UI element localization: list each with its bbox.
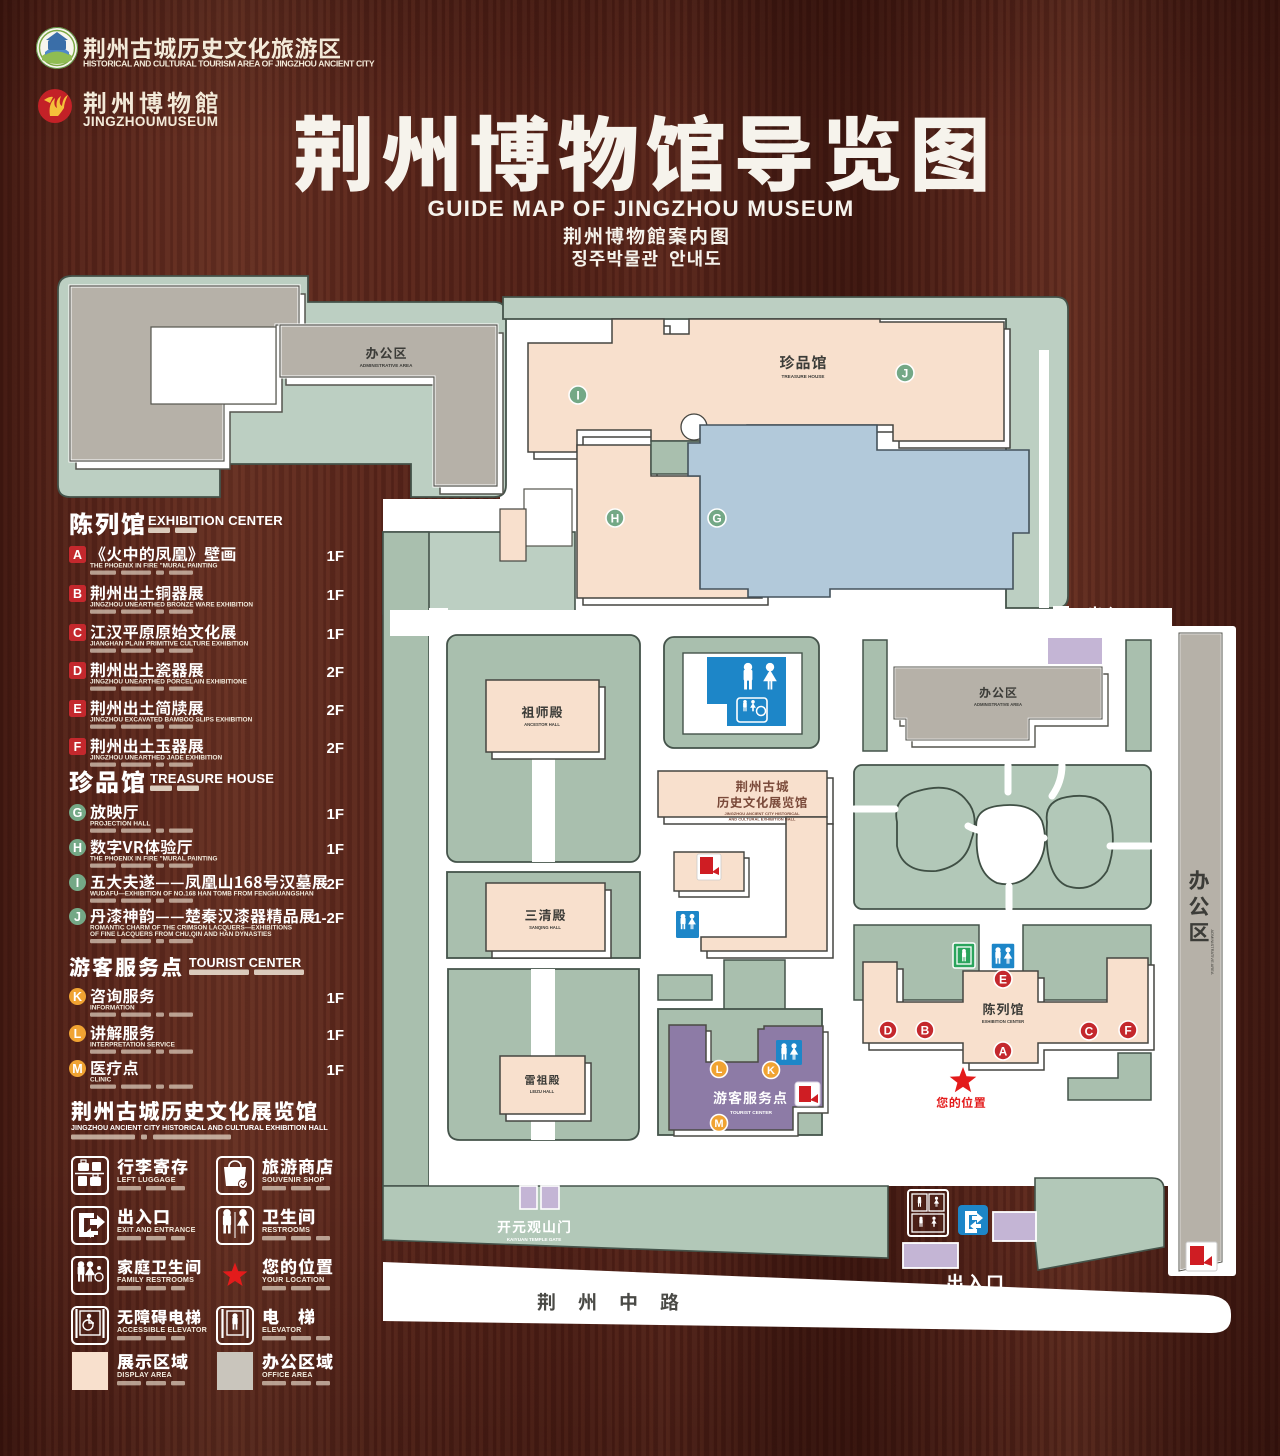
svg-text:G: G — [73, 806, 83, 820]
svg-text:ADMINISTRATIVE AREA: ADMINISTRATIVE AREA — [974, 702, 1022, 707]
svg-text:OF FINE LACQUERS FROM CHU,QIN: OF FINE LACQUERS FROM CHU,QIN AND HAN DY… — [90, 931, 272, 938]
svg-text:INFORMATION: INFORMATION — [90, 1005, 135, 1012]
svg-text:L: L — [716, 1064, 723, 1076]
svg-text:JINGZHOU ANCIENT CITY HISTORIC: JINGZHOU ANCIENT CITY HISTORICAL AND CUL… — [71, 1123, 328, 1132]
svg-text:FAMILY RESTROOMS: FAMILY RESTROOMS — [117, 1275, 194, 1284]
svg-text:JINGZHOU UNEARTHED PORCELAIN E: JINGZHOU UNEARTHED PORCELAIN EXHIBITIONE — [90, 679, 248, 686]
svg-text:INTERPRETATION SERVICE: INTERPRETATION SERVICE — [90, 1042, 176, 1049]
svg-text:H: H — [611, 511, 620, 525]
svg-text:SANQING HALL: SANQING HALL — [529, 925, 561, 930]
svg-text:EXIT AND ENTRANCE: EXIT AND ENTRANCE — [117, 1225, 196, 1234]
svg-text:L: L — [74, 1027, 82, 1041]
svg-text:DISPLAY AREA: DISPLAY AREA — [117, 1370, 172, 1379]
svg-text:JINGZHOU ANCIENT CITY HISTORIC: JINGZHOU ANCIENT CITY HISTORICAL — [724, 811, 800, 816]
svg-text:E: E — [73, 702, 81, 716]
svg-text:TOURIST CENTER: TOURIST CENTER — [730, 1110, 773, 1116]
svg-text:EXHIBITION CENTER: EXHIBITION CENTER — [148, 513, 283, 528]
svg-text:D: D — [73, 664, 82, 678]
svg-text:1F: 1F — [326, 806, 344, 823]
svg-text:I: I — [76, 876, 79, 890]
svg-text:D: D — [884, 1023, 893, 1037]
svg-text:F: F — [74, 740, 82, 754]
svg-text:EXIT AND ENTRANCE: EXIT AND ENTRANCE — [1083, 628, 1142, 634]
svg-text:B: B — [73, 587, 82, 601]
svg-text:C: C — [1085, 1024, 1094, 1038]
svg-text:AND CULTURAL EXHIBITION HALL: AND CULTURAL EXHIBITION HALL — [729, 817, 797, 822]
svg-text:HISTORICAL AND CULTURAL TOURIS: HISTORICAL AND CULTURAL TOURISM AREA OF … — [83, 59, 375, 69]
svg-text:JIANGHAN PLAIN PRIMITIVE CULTU: JIANGHAN PLAIN PRIMITIVE CULTURE EXHIBIT… — [90, 641, 249, 648]
svg-text:A: A — [73, 548, 82, 562]
svg-text:JINGZHOU UNEARTHED JADE EXHIBI: JINGZHOU UNEARTHED JADE EXHIBITION — [90, 755, 222, 762]
svg-text:J: J — [74, 910, 81, 924]
svg-text:JINGZHOUMUSEUM: JINGZHOUMUSEUM — [83, 114, 218, 129]
svg-text:1F: 1F — [326, 626, 344, 643]
svg-text:ACCESSIBLE ELEVATOR: ACCESSIBLE ELEVATOR — [117, 1325, 208, 1334]
svg-text:EXHIBITION CENTER: EXHIBITION CENTER — [982, 1019, 1024, 1024]
svg-text:WUDAFU—EXHIBITION OF NO.168 HA: WUDAFU—EXHIBITION OF NO.168 HAN TOMB FRO… — [90, 891, 314, 898]
svg-text:E: E — [999, 972, 1007, 986]
svg-text:GUIDE MAP OF JINGZHOU MUSEUM: GUIDE MAP OF JINGZHOU MUSEUM — [428, 196, 855, 221]
svg-text:LEFT LUGGAGE: LEFT LUGGAGE — [117, 1175, 176, 1184]
svg-text:M: M — [714, 1118, 723, 1130]
svg-text:ANCESTOR HALL: ANCESTOR HALL — [524, 722, 560, 727]
svg-text:THE PHOENIX IN FIRE "MURAL PAI: THE PHOENIX IN FIRE "MURAL PAINTING — [90, 563, 217, 570]
svg-text:PROJECTION HALL: PROJECTION HALL — [90, 821, 150, 828]
svg-text:K: K — [73, 990, 82, 1004]
svg-text:JINGZHOU EXCAVATED BAMBOO SLIP: JINGZHOU EXCAVATED BAMBOO SLIPS EXHIBITI… — [90, 717, 253, 724]
svg-text:C: C — [73, 626, 82, 640]
svg-text:H: H — [73, 841, 82, 855]
svg-text:LEIZU HALL: LEIZU HALL — [530, 1089, 555, 1094]
svg-text:ADMINISTRATIVE AREA: ADMINISTRATIVE AREA — [360, 363, 414, 368]
svg-text:OFFICE AREA: OFFICE AREA — [262, 1370, 313, 1379]
svg-text:F: F — [1124, 1023, 1131, 1037]
svg-text:KAIYUAN TEMPLE GATE: KAIYUAN TEMPLE GATE — [507, 1237, 562, 1242]
svg-text:YOUR LOCATION: YOUR LOCATION — [262, 1275, 324, 1284]
svg-text:A: A — [999, 1044, 1008, 1058]
svg-text:TOURIST CENTER: TOURIST CENTER — [189, 956, 301, 970]
svg-text:2F: 2F — [326, 740, 344, 757]
svg-text:1F: 1F — [326, 1062, 344, 1079]
svg-text:CLINIC: CLINIC — [90, 1077, 112, 1084]
svg-text:RESTROOMS: RESTROOMS — [262, 1225, 310, 1234]
svg-text:B: B — [921, 1023, 930, 1037]
svg-text:2F: 2F — [326, 876, 344, 893]
svg-text:1F: 1F — [326, 587, 344, 604]
svg-text:1F: 1F — [326, 1027, 344, 1044]
svg-text:1F: 1F — [326, 841, 344, 858]
svg-text:G: G — [712, 511, 721, 525]
svg-text:JINGZHOU UNEARTHED BRONZE WARE: JINGZHOU UNEARTHED BRONZE WARE EXHIBITIO… — [90, 602, 253, 609]
svg-text:TREASURE HOUSE: TREASURE HOUSE — [782, 374, 825, 379]
svg-text:1F: 1F — [326, 990, 344, 1007]
svg-text:J: J — [902, 366, 909, 380]
svg-text:K: K — [767, 1065, 775, 1077]
svg-text:1-2F: 1-2F — [313, 910, 344, 927]
svg-text:1F: 1F — [326, 548, 344, 565]
svg-text:I: I — [576, 388, 579, 402]
svg-text:2F: 2F — [326, 664, 344, 681]
svg-text:THE PHOENIX IN FIRE "MURAL PAI: THE PHOENIX IN FIRE "MURAL PAINTING — [90, 856, 217, 863]
svg-text:ELEVATOR: ELEVATOR — [262, 1325, 302, 1334]
svg-text:TREASURE HOUSE: TREASURE HOUSE — [150, 771, 274, 786]
svg-text:ADMINISTRATIVE AREA: ADMINISTRATIVE AREA — [1210, 929, 1215, 974]
svg-text:M: M — [72, 1062, 82, 1076]
svg-text:SOUVENIR SHOP: SOUVENIR SHOP — [262, 1175, 325, 1184]
svg-text:2F: 2F — [326, 702, 344, 719]
